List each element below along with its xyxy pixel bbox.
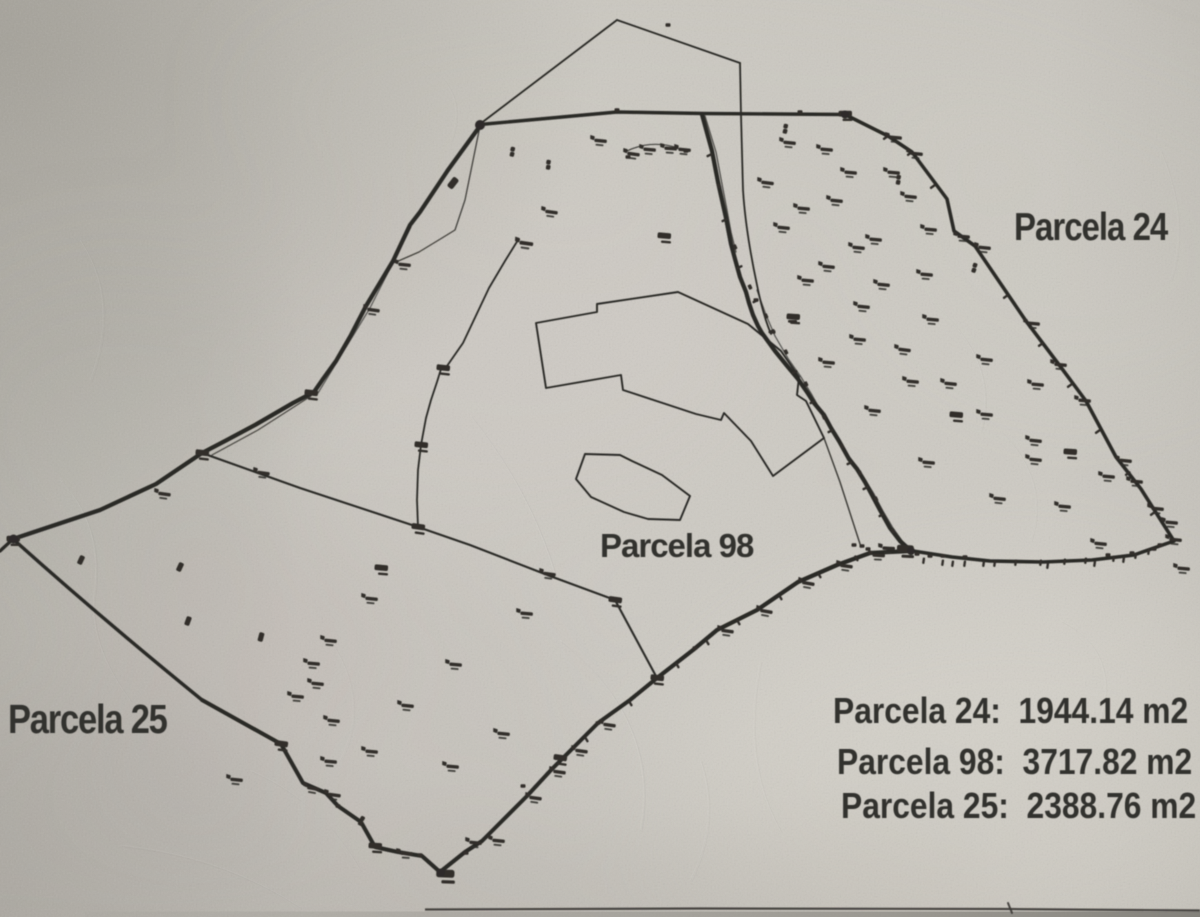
svg-text:Parcela 98: Parcela 98 — [600, 528, 754, 565]
svg-text:Parcela 98: 3717.82 m2: Parcela 98: 3717.82 m2 — [837, 742, 1192, 783]
svg-text:Parcela 24: 1944.14 m2: Parcela 24: 1944.14 m2 — [833, 691, 1188, 732]
svg-text:Parcela 24: Parcela 24 — [1014, 205, 1168, 249]
svg-text:Parcela 25: 2388.76 m2: Parcela 25: 2388.76 m2 — [841, 786, 1196, 827]
svg-text:Parcela 25: Parcela 25 — [8, 696, 167, 741]
